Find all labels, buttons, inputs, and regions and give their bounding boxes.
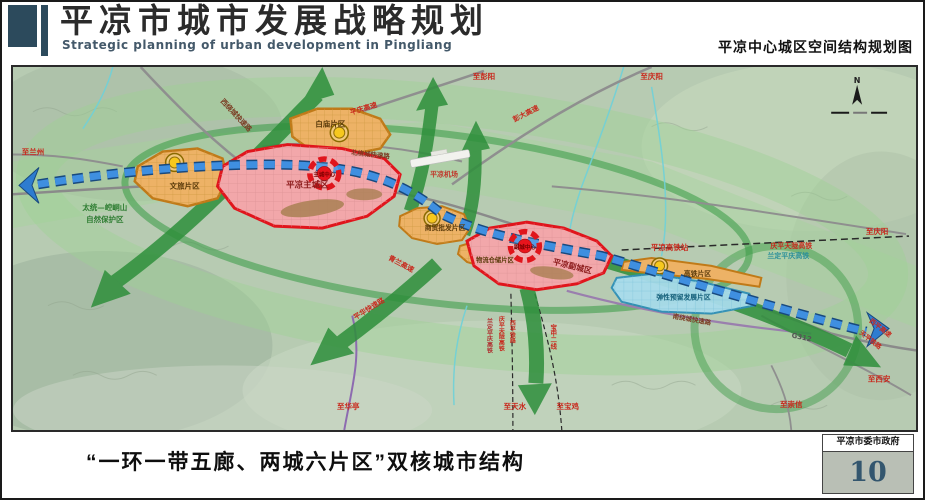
- plan-sheet: 平凉市城市发展战略规划 Strategic planning of urban …: [0, 0, 925, 500]
- label-hsr-station: 平凉高铁站: [651, 242, 689, 252]
- label-to-qingyang-top: 至庆阳: [640, 71, 662, 81]
- label-ldpq-hsr-vertical: 兰定平庆高铁: [485, 317, 493, 355]
- logo-square: [8, 5, 37, 47]
- header: 平凉市城市发展战略规划 Strategic planning of urban …: [2, 2, 923, 64]
- label-to-qingyang-east: 至庆阳: [866, 226, 888, 236]
- label-district-wuliu: 物流仓储片区: [476, 255, 514, 264]
- label-xiping-rail-vertical: 西平铁路: [508, 319, 515, 345]
- logo-bar: [41, 5, 48, 56]
- label-main-core: 主城中心: [313, 170, 335, 178]
- gov-box: 平凉市委市政府 10: [822, 434, 914, 494]
- label-qptl-hsr-vertical: 庆平天陇高铁: [497, 315, 505, 353]
- label-to-baoji: 至宝鸡: [557, 401, 580, 411]
- label-district-gaotie: 高铁片区: [684, 269, 711, 278]
- agency-name: 平凉市委市政府: [823, 435, 913, 452]
- label-airport: 平凉机场: [430, 169, 458, 178]
- label-district-tanxing: 弹性预留发展片区: [656, 293, 710, 302]
- label-qptl-hsr: 庆平天陇高铁: [769, 241, 812, 250]
- map-title-caption: 平凉中心城区空间结构规划图: [718, 37, 913, 57]
- footer-caption: “一环一带五廊、两城六片区”双核城市结构: [86, 446, 525, 476]
- title-block: 平凉市城市发展战略规划 Strategic planning of urban …: [60, 2, 489, 52]
- label-to-lanzhou: 至兰州: [22, 147, 44, 157]
- label-sub-core: 副城中心: [514, 243, 536, 251]
- label-main-city: 平凉主城区: [286, 179, 329, 189]
- structure-plan-map: 至兰州 西绕城快速路 平庆高速 至彭阳 彭大高速 至庆阳 至庆阳 白庙片区 北绕…: [13, 67, 916, 430]
- north-arrow-label: N: [854, 76, 861, 85]
- page-number: 10: [823, 452, 913, 493]
- label-district-shangmao: 商贸批发片区: [425, 223, 466, 232]
- label-reserve-line1: 太统—崆峒山: [82, 202, 127, 212]
- map-frame: 至兰州 西绕城快速路 平庆高速 至彭阳 彭大高速 至庆阳 至庆阳 白庙片区 北绕…: [11, 65, 918, 432]
- label-district-wenlv: 文旅片区: [170, 180, 200, 190]
- page-title: 平凉市城市发展战略规划: [60, 2, 489, 40]
- label-ldpq-hsr: 兰定平庆高铁: [767, 251, 809, 260]
- label-to-xian: 至西安: [868, 373, 891, 383]
- label-to-pengyang: 至彭阳: [473, 71, 495, 81]
- label-to-tianshui: 至天水: [504, 401, 527, 411]
- label-district-baimiao: 白庙片区: [315, 119, 345, 129]
- label-baozhong-rail-vertical: 宝中二线: [549, 322, 557, 350]
- label-reserve-line2: 自然保护区: [86, 214, 124, 224]
- label-to-chongxin: 至崇信: [780, 399, 803, 409]
- page-subtitle-en: Strategic planning of urban development …: [60, 38, 489, 52]
- label-to-huating: 至华亭: [337, 401, 360, 411]
